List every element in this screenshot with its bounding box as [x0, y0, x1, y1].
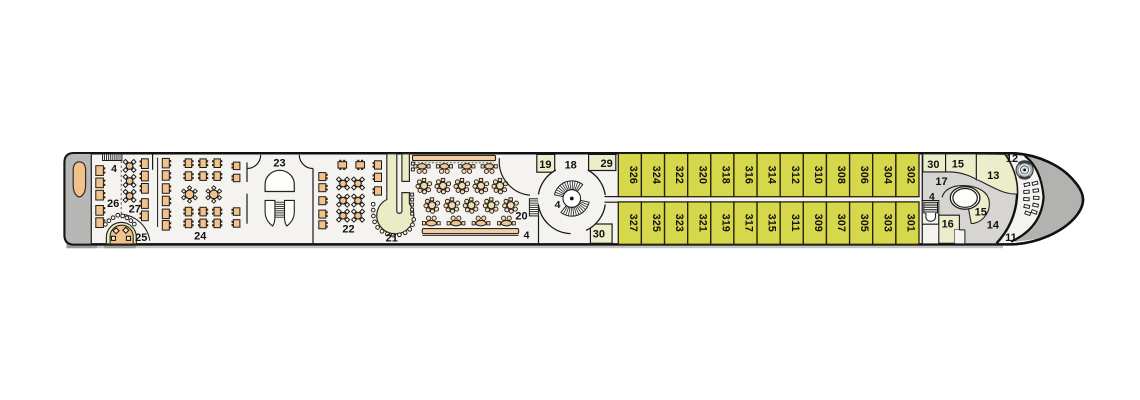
- svg-text:4: 4: [929, 192, 935, 203]
- svg-text:30: 30: [593, 228, 605, 240]
- svg-text:25: 25: [135, 232, 147, 244]
- svg-text:15: 15: [975, 207, 987, 219]
- svg-text:325: 325: [650, 214, 662, 232]
- svg-text:27: 27: [129, 204, 141, 216]
- svg-text:21: 21: [386, 232, 398, 244]
- svg-text:305: 305: [858, 214, 870, 232]
- svg-text:24: 24: [194, 231, 207, 243]
- svg-text:324: 324: [650, 166, 662, 184]
- svg-text:19: 19: [539, 159, 551, 171]
- svg-text:18: 18: [565, 159, 577, 171]
- svg-text:303: 303: [881, 214, 893, 232]
- svg-text:23: 23: [273, 157, 285, 169]
- svg-text:11: 11: [1005, 232, 1017, 244]
- svg-text:16: 16: [942, 218, 954, 230]
- svg-text:15: 15: [952, 158, 964, 170]
- svg-text:323: 323: [673, 214, 685, 232]
- svg-text:4: 4: [524, 229, 530, 241]
- svg-text:304: 304: [881, 166, 893, 184]
- svg-text:320: 320: [696, 166, 708, 184]
- svg-text:306: 306: [858, 166, 870, 184]
- svg-text:311: 311: [789, 214, 801, 232]
- svg-text:4: 4: [555, 199, 561, 211]
- svg-text:322: 322: [673, 166, 685, 184]
- svg-text:319: 319: [719, 214, 731, 232]
- svg-text:310: 310: [812, 166, 824, 184]
- svg-text:307: 307: [835, 214, 847, 232]
- svg-text:4: 4: [111, 163, 117, 175]
- svg-text:309: 309: [812, 214, 824, 232]
- svg-text:314: 314: [766, 166, 778, 184]
- svg-text:29: 29: [600, 158, 612, 170]
- svg-text:30: 30: [927, 159, 939, 171]
- svg-text:326: 326: [627, 166, 639, 184]
- svg-text:22: 22: [342, 223, 354, 235]
- svg-text:308: 308: [835, 166, 847, 184]
- svg-text:321: 321: [696, 214, 708, 232]
- svg-text:17: 17: [935, 176, 947, 188]
- svg-text:315: 315: [766, 214, 778, 232]
- svg-text:318: 318: [719, 166, 731, 184]
- svg-text:302: 302: [904, 166, 916, 184]
- svg-text:317: 317: [743, 214, 755, 232]
- svg-text:26: 26: [107, 198, 119, 210]
- svg-text:301: 301: [904, 214, 916, 232]
- svg-text:20: 20: [515, 210, 527, 222]
- svg-text:316: 316: [743, 166, 755, 184]
- svg-text:12: 12: [1006, 153, 1018, 165]
- svg-text:327: 327: [627, 214, 639, 232]
- svg-text:312: 312: [789, 166, 801, 184]
- svg-text:14: 14: [987, 219, 1000, 231]
- svg-text:13: 13: [987, 170, 999, 182]
